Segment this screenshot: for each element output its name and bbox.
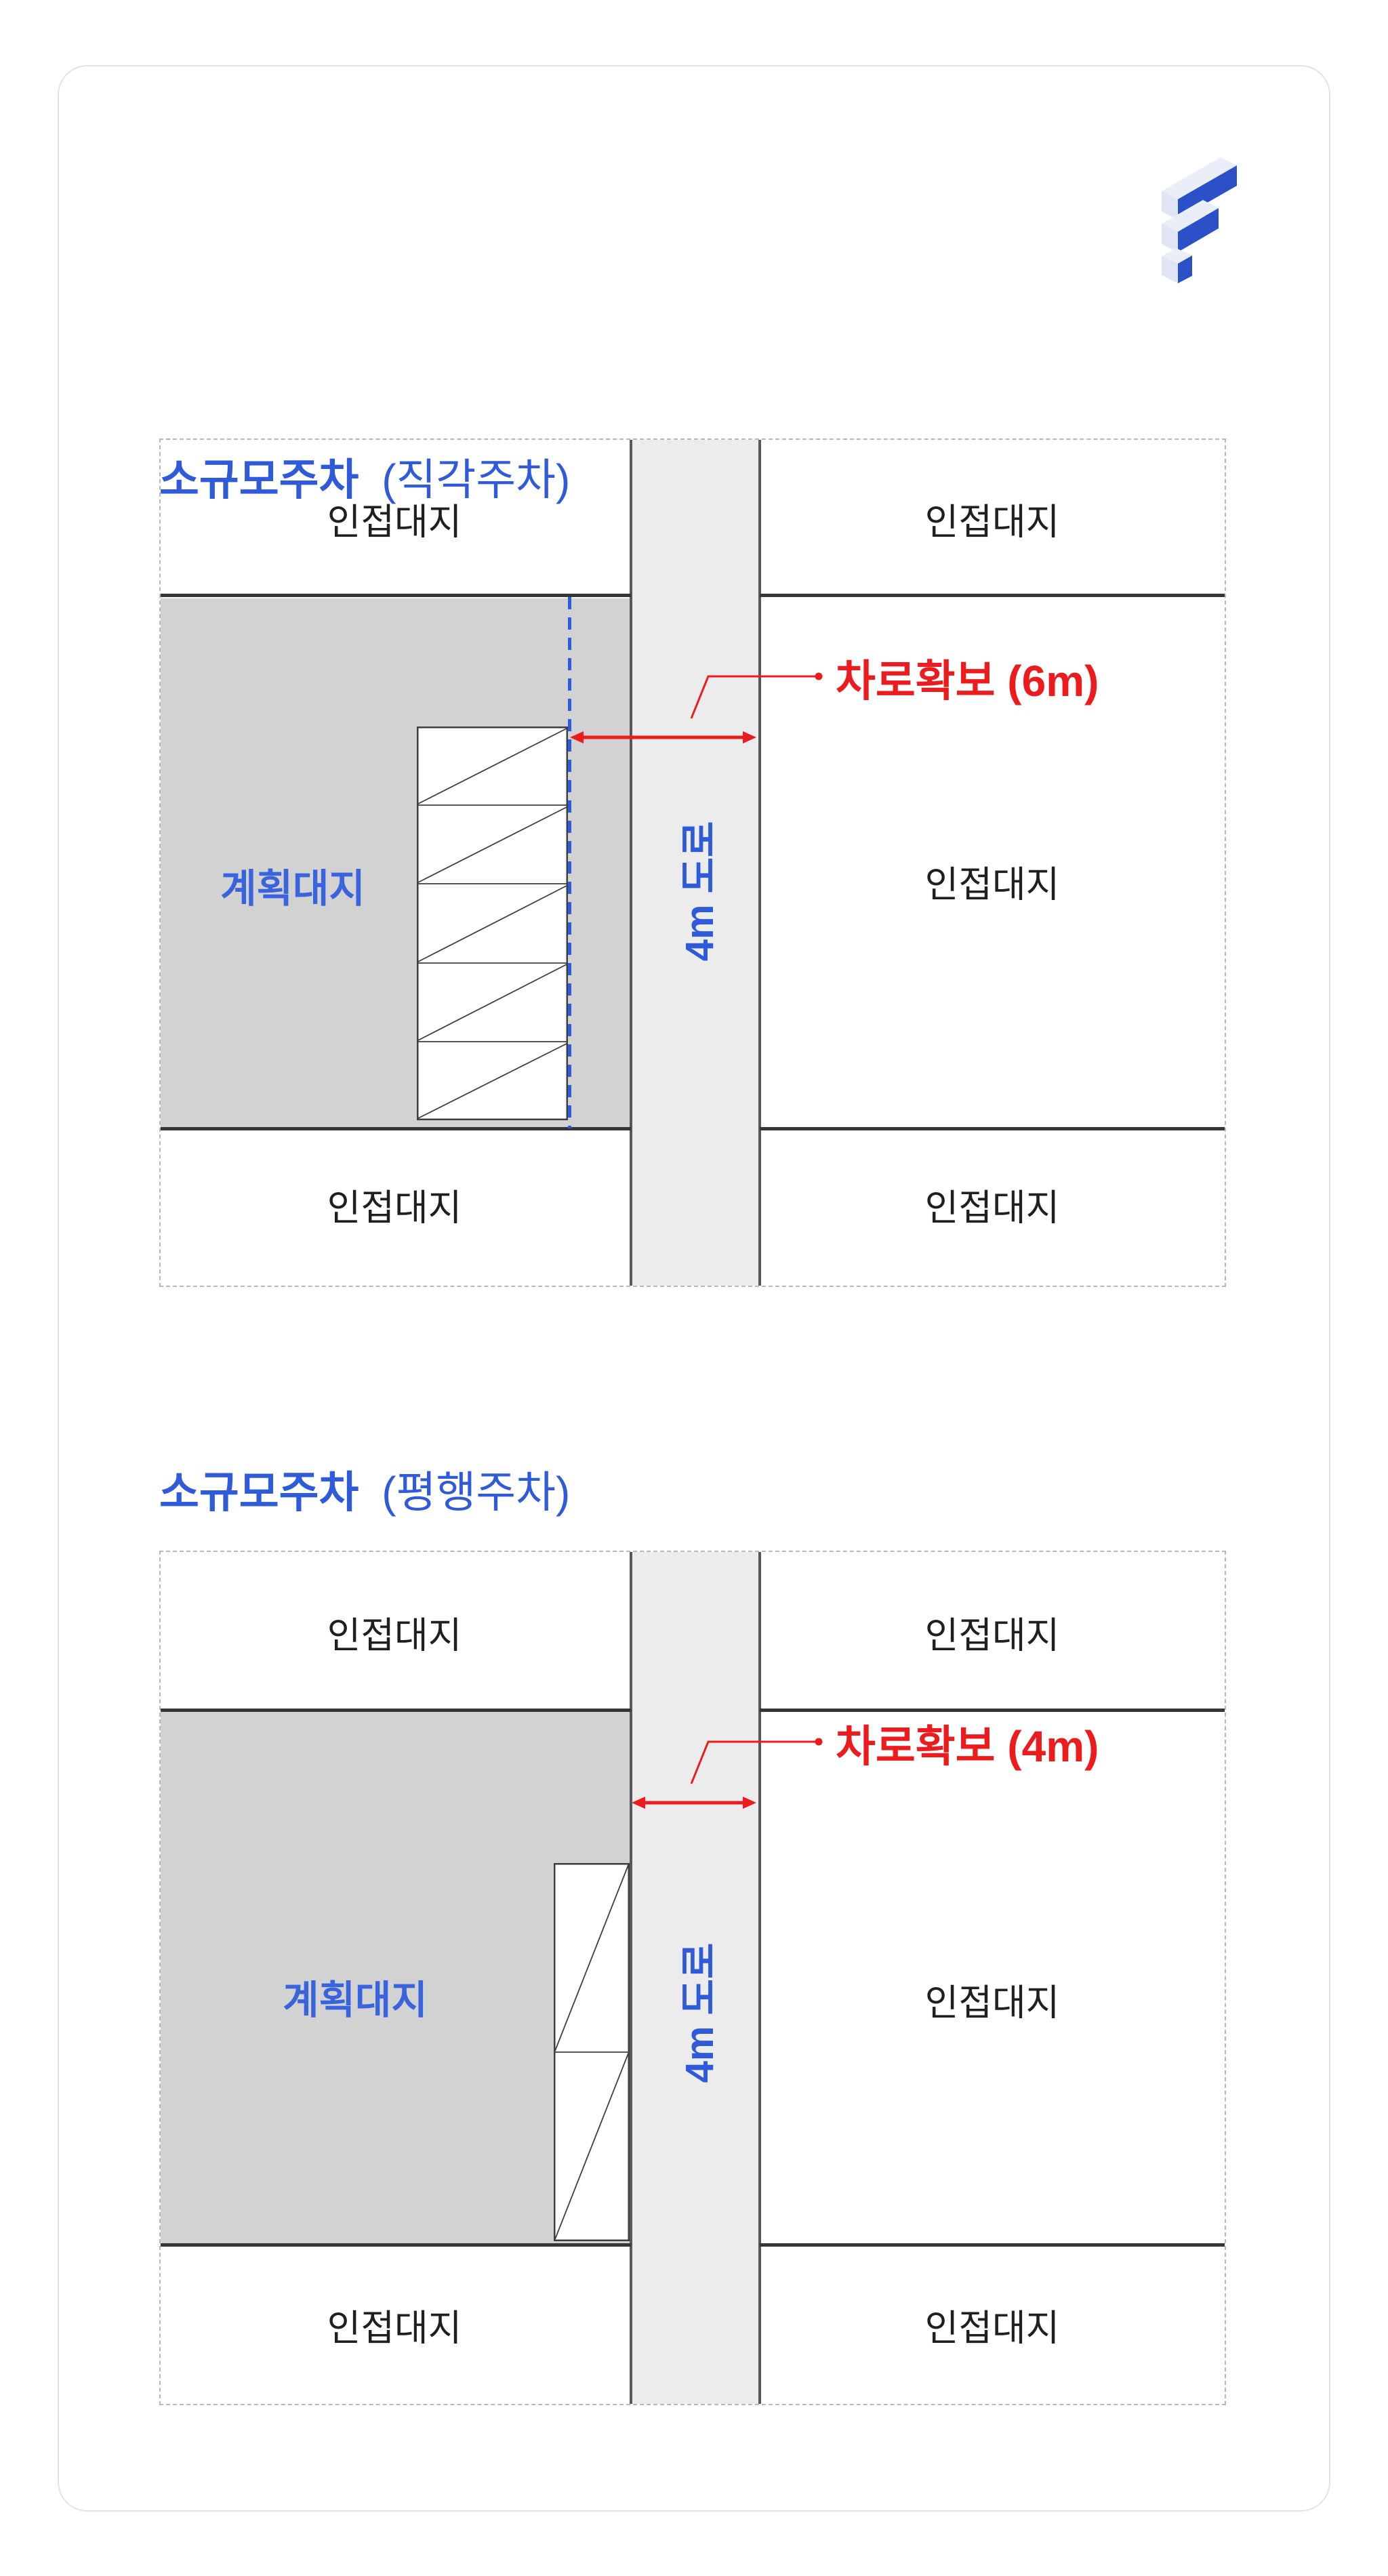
adjacent-site-label-top-right: 인접대지 [925,1606,1060,1659]
adjacent-site-label-mid-right: 인접대지 [925,1973,1060,2026]
adjacent-site-label-mid-right: 인접대지 [925,855,1060,908]
adjacent-site-label-bottom-left: 인접대지 [327,2298,462,2352]
parking-stalls [417,727,568,1120]
adjacent-site-label-top-left: 인접대지 [327,492,462,546]
adjacent-site-label-bottom-left: 인접대지 [327,1178,462,1231]
parcel-line-bottom-right [760,2243,1225,2247]
adjacent-site-label-top-left: 인접대지 [327,1606,462,1659]
site-plan-diagram-perpendicular: 인접대지 인접대지 인접대지 인접대지 인접대지 계획대지 4m 도로 차로확보… [159,438,1226,1287]
parcel-line-top-right [760,594,1225,597]
setback-dashed-line [568,597,571,1128]
site-plan-diagram-parallel: 인접대지 인접대지 인접대지 인접대지 인접대지 계획대지 4m 도로 차로확보… [159,1551,1226,2405]
planned-site-label: 계획대지 [220,857,365,914]
adjacent-site-label-bottom-right: 인접대지 [925,2298,1060,2352]
adjacent-site-label-top-right: 인접대지 [925,492,1060,546]
section-title-sub: (평행주차) [382,1468,570,1517]
lane-clearance-label: 차로확보 (4m) [836,1712,1099,1774]
road-width-label: 4m 도로 [668,821,724,962]
parking-stalls [554,1863,630,2241]
parcel-line-bottom-left [161,1127,631,1130]
parcel-line-bottom-left [161,2243,631,2247]
page: 소규모주차 (직각주차) [0,0,1388,2576]
parcel-line-top-left [161,594,631,597]
adjacent-site-label-bottom-right: 인접대지 [925,1178,1060,1231]
section-title: 소규모주차 (평행주차) [159,1467,570,1518]
planned-site-label: 계획대지 [283,1968,427,2025]
section-title-main: 소규모주차 [159,1468,359,1517]
parcel-line-bottom-right [760,1127,1225,1130]
brand-logo-icon [1160,156,1242,285]
road-width-label: 4m 도로 [668,1943,724,2083]
lane-clearance-label: 차로확보 (6m) [836,647,1099,709]
parcel-line-top-left [161,1709,631,1712]
